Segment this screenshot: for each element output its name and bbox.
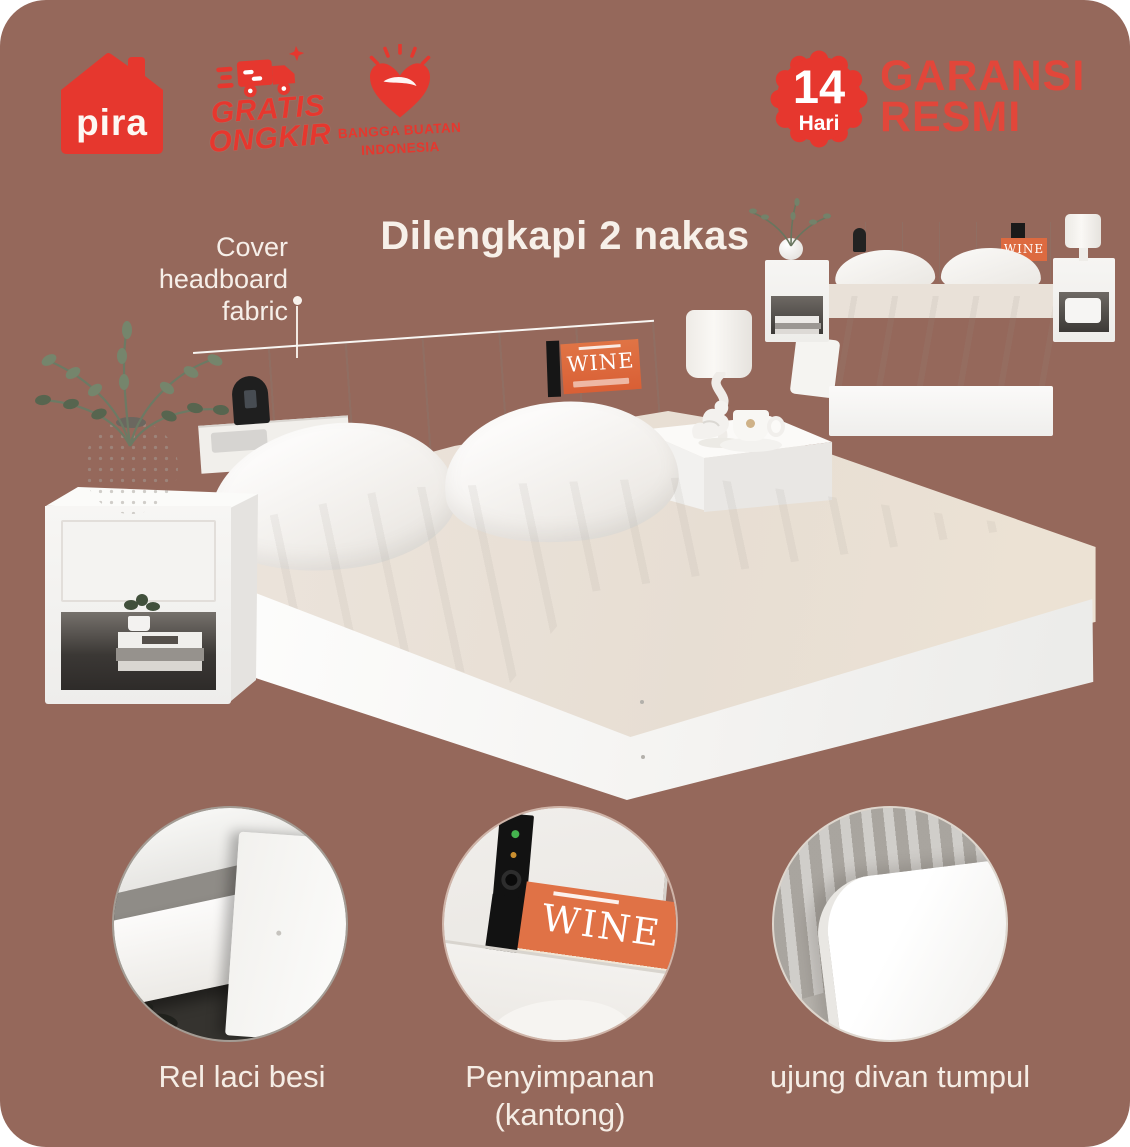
mini-plant-leaf <box>146 602 160 611</box>
callout-rounded-edge <box>772 806 1008 1042</box>
warranty-days-badge: 14 Hari <box>770 50 868 148</box>
made-in-indonesia-label: BANGGA BUATAN INDONESIA <box>327 118 473 162</box>
amber-indicator <box>510 852 517 859</box>
inset-blanket <box>817 296 1059 390</box>
cup-logo <box>746 419 755 428</box>
wine-magazine: WINE <box>560 339 641 394</box>
inset-lamp-stem <box>1079 248 1088 261</box>
coffee-cup <box>733 410 769 441</box>
nightstand-drawer <box>61 520 216 602</box>
book-spine-label <box>142 636 178 644</box>
table-lamp-shade <box>686 310 752 378</box>
divan-screw <box>641 755 645 759</box>
shelf-book <box>118 632 202 648</box>
heart-icon <box>364 44 436 122</box>
free-shipping-label: GRATIS ONGKIR <box>190 91 349 159</box>
magazine-title: WINE <box>519 893 678 958</box>
led-indicator <box>511 830 520 839</box>
inset-lamp <box>1065 214 1101 248</box>
made-in-indonesia-badge: BANGGA BUATAN INDONESIA <box>334 42 466 166</box>
annotation-pointer-dot <box>293 296 302 305</box>
headboard-annotation: Cover headboard fabric <box>120 232 288 328</box>
inset-headboard-gadget <box>1011 223 1025 238</box>
callout-drawer-label: Rel laci besi <box>112 1058 372 1096</box>
drawer-screw <box>276 930 281 935</box>
black-magazine <box>546 341 561 397</box>
free-shipping-badge: GRATIS ONGKIR <box>186 43 348 166</box>
brand-logo: pira <box>52 46 172 160</box>
inset-basket <box>1065 298 1101 323</box>
magazine-text-bar <box>573 378 629 388</box>
promo-card: pira GRATIS ONGKIR <box>0 0 1130 1147</box>
brand-name: pira <box>52 102 172 144</box>
bird-figurine <box>686 396 738 442</box>
divan-screw <box>640 700 644 704</box>
inset-bedroom-scene: WINE <box>735 192 1123 452</box>
warranty-label: GARANSI RESMI <box>880 56 1130 138</box>
inset-plant <box>743 196 835 248</box>
drawer-front-panel <box>225 832 348 1042</box>
eucalyptus-plant <box>25 318 240 453</box>
plant-silhouette <box>147 1011 179 1031</box>
callout-storage-pocket: WINE 220 <box>442 806 678 1042</box>
inset-bed-base <box>829 386 1053 436</box>
shelf-book <box>118 661 202 671</box>
inset-book <box>775 329 819 334</box>
inset-book <box>775 316 819 323</box>
magazine-title: WINE <box>561 348 640 377</box>
callout-storage-label: Penyimpanan (kantong) <box>430 1058 690 1134</box>
device-screen <box>244 390 257 409</box>
callout-edge-label: ujung divan tumpul <box>752 1058 1048 1096</box>
warranty-days-number: 14 <box>770 63 868 110</box>
warranty-days-unit: Hari <box>770 112 868 136</box>
shelf-book <box>116 648 204 661</box>
nightstand-left-side <box>228 494 260 704</box>
inset-headboard-device <box>853 228 866 252</box>
mini-plant-pot <box>128 616 150 631</box>
device-knob <box>501 869 523 891</box>
cup-handle <box>767 416 785 437</box>
callout-drawer-rails <box>112 806 348 1042</box>
